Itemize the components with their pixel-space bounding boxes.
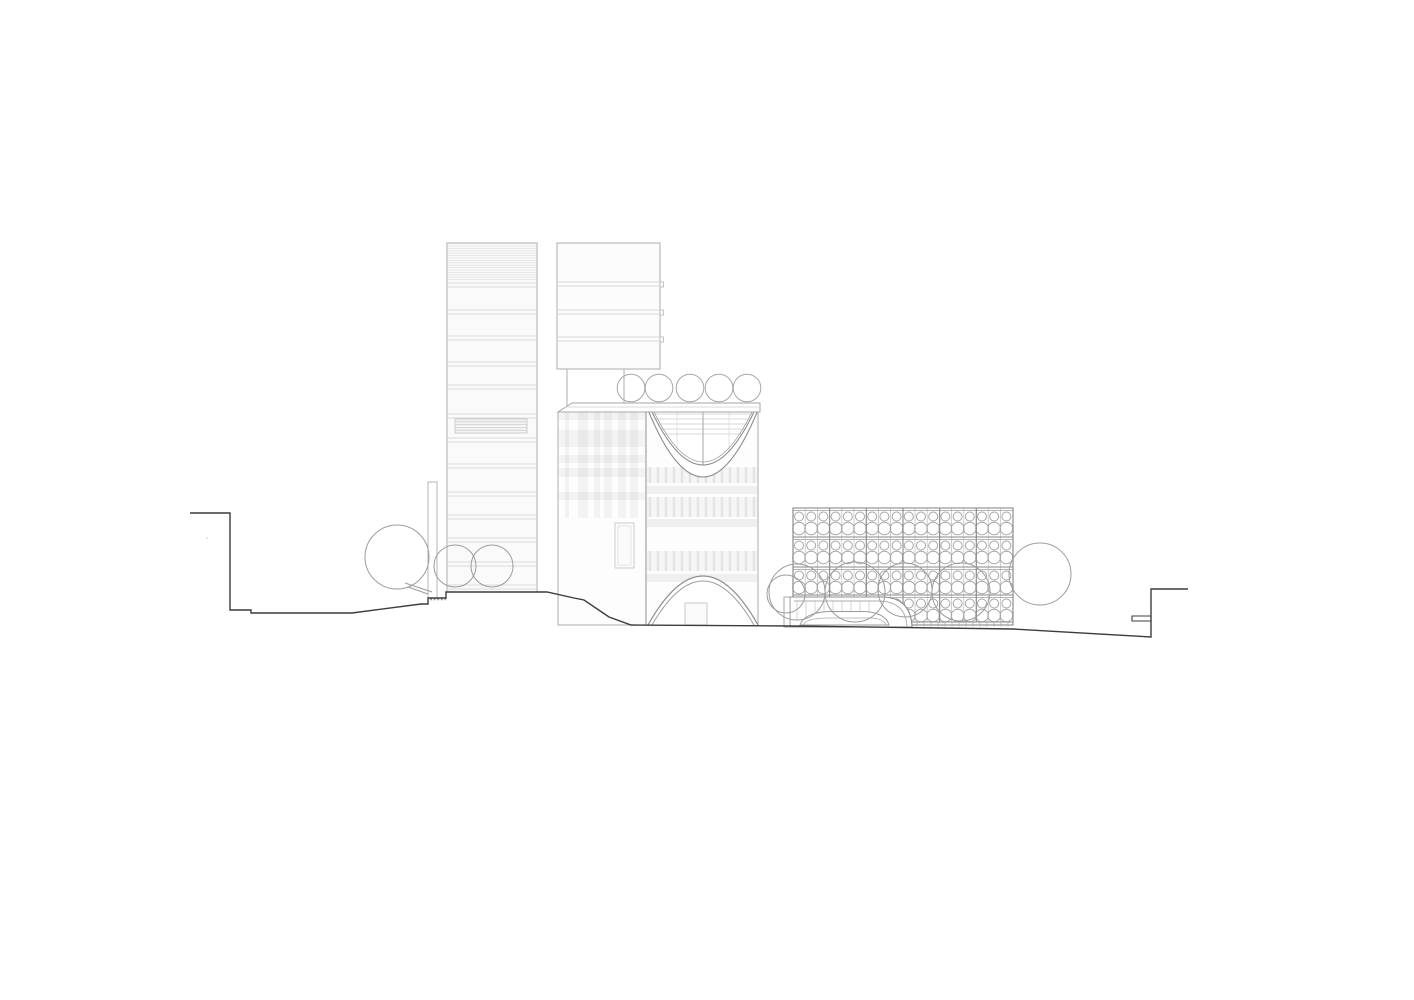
terrain-step-notch <box>1132 616 1151 621</box>
wing-facade-strip <box>604 412 612 518</box>
arch-door <box>685 603 707 625</box>
roof-trees <box>617 374 761 402</box>
wing-facade-band <box>559 492 645 500</box>
wing-facade-band <box>559 413 645 420</box>
mid-building <box>558 403 760 625</box>
mid-roof-canopy <box>558 403 760 412</box>
elevation-drawing-stage <box>0 0 1414 1000</box>
wing-facade-strip <box>578 412 588 518</box>
retaining-wall <box>428 482 446 599</box>
wing-facade-band <box>559 430 645 447</box>
roof-tree-circle <box>676 374 704 402</box>
tower-louver-box <box>455 419 527 433</box>
wing-facade-strip <box>618 412 626 518</box>
block-facade-band <box>647 486 757 494</box>
stray-mark-dot <box>206 537 208 539</box>
roof-tree-circle <box>705 374 733 402</box>
second-tower <box>557 243 664 369</box>
wing-facade-strip <box>565 412 569 518</box>
podium-pier <box>784 597 790 627</box>
block-facade-band <box>647 519 757 527</box>
second-tower-body <box>557 243 660 369</box>
block-tick-row-bg <box>647 551 757 571</box>
roof-tree-circle <box>733 374 761 402</box>
tree-trunk-line <box>408 587 428 594</box>
retaining-wall-body <box>428 482 437 598</box>
roof-tree-circle <box>617 374 645 402</box>
roof-tree-circle <box>645 374 673 402</box>
band-edge-tick <box>660 310 664 315</box>
wing-facade-strip <box>594 412 600 518</box>
band-edge-tick <box>660 337 664 342</box>
elevation-drawing <box>0 0 1414 1000</box>
wing-facade-band <box>559 455 645 463</box>
wing-facade-strip <box>630 412 638 518</box>
band-edge-tick <box>660 282 664 287</box>
wing-facade-band <box>559 468 645 477</box>
tree-canopy-circle <box>365 525 429 589</box>
left-tower <box>447 243 537 592</box>
tree-canopy-circle <box>1009 543 1071 605</box>
block-tick-row-bg <box>647 497 757 517</box>
